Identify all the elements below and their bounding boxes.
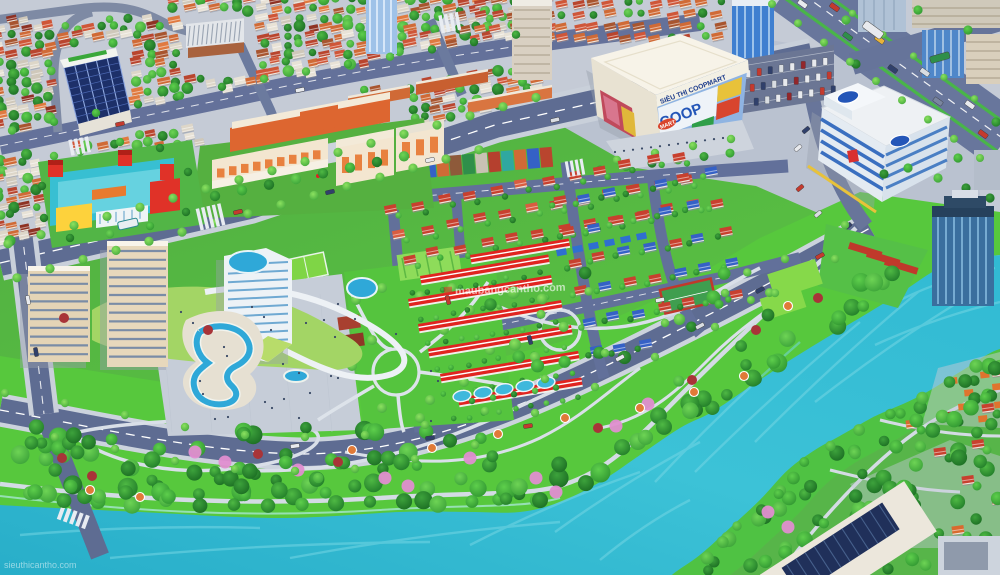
- svg-text:sieuthicantho.com: sieuthicantho.com: [4, 560, 77, 570]
